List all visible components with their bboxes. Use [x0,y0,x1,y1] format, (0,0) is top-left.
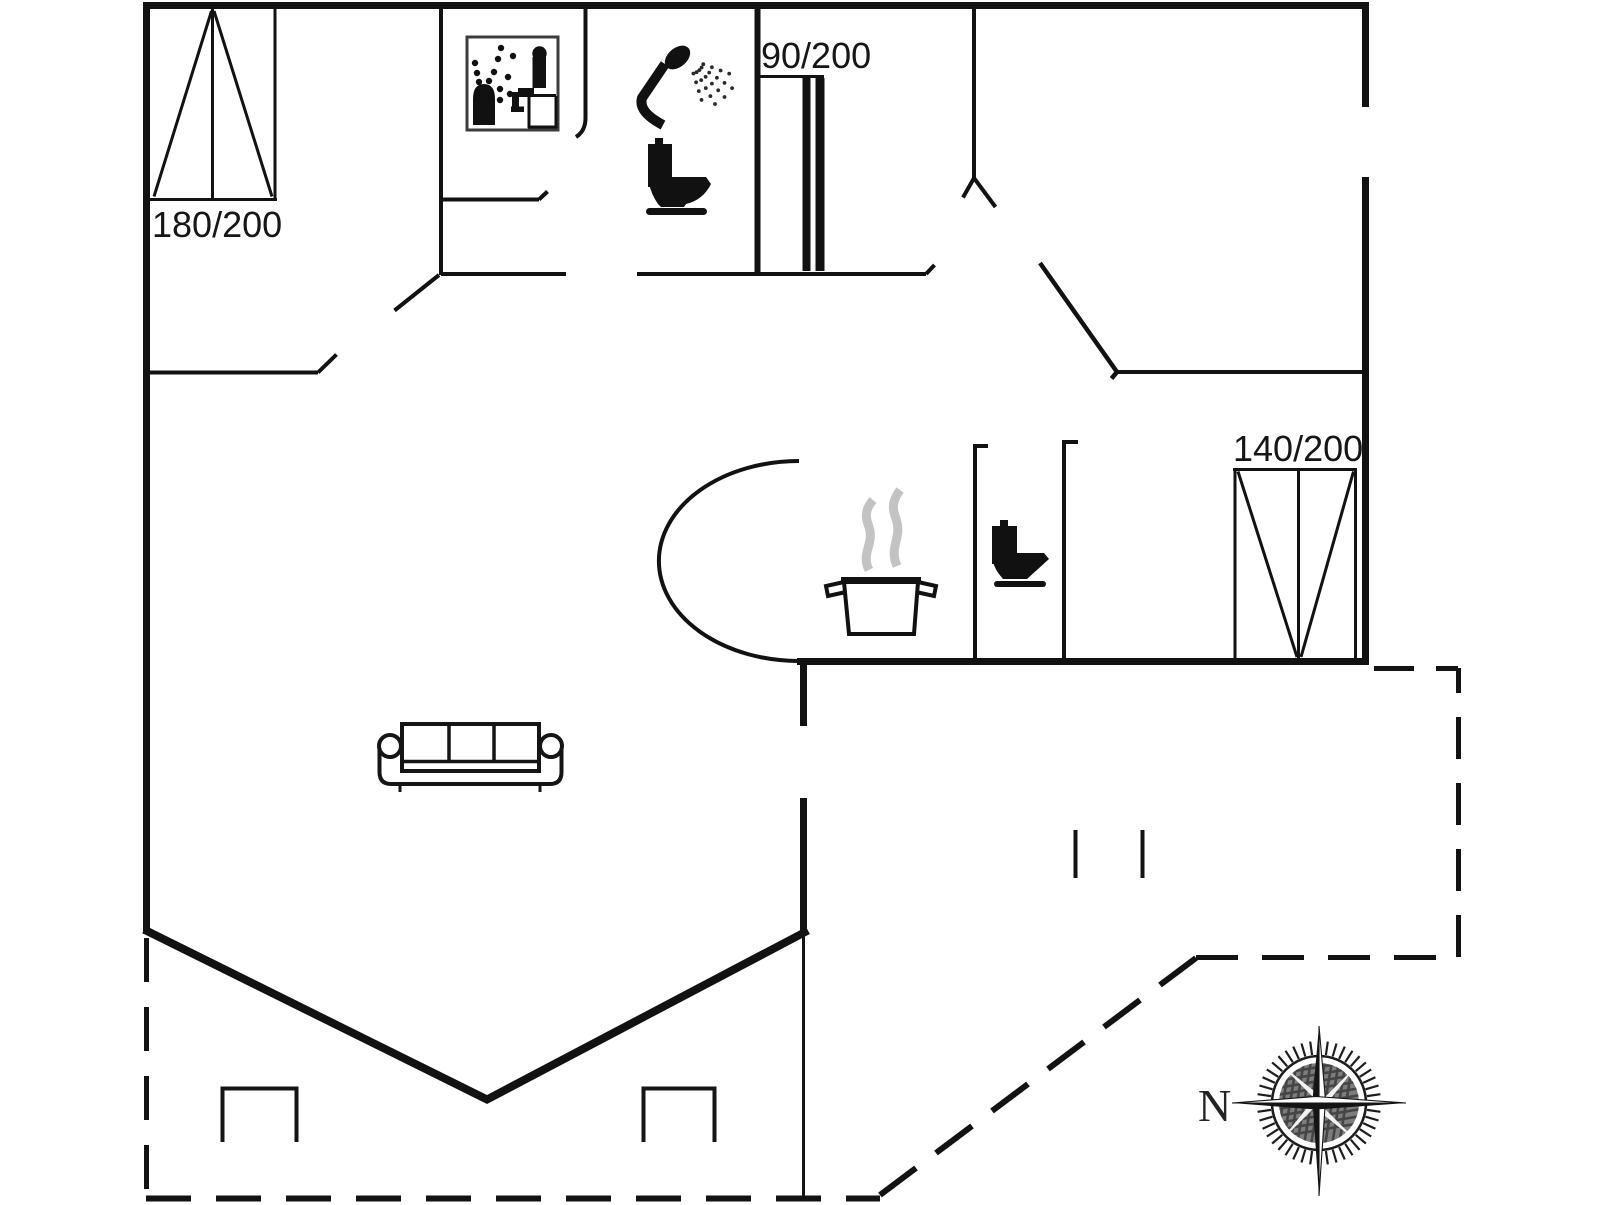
svg-text:N: N [1198,1080,1231,1131]
svg-text:140/200: 140/200 [1233,428,1363,469]
svg-text:180/200: 180/200 [152,204,282,245]
svg-text:90/200: 90/200 [761,35,871,76]
